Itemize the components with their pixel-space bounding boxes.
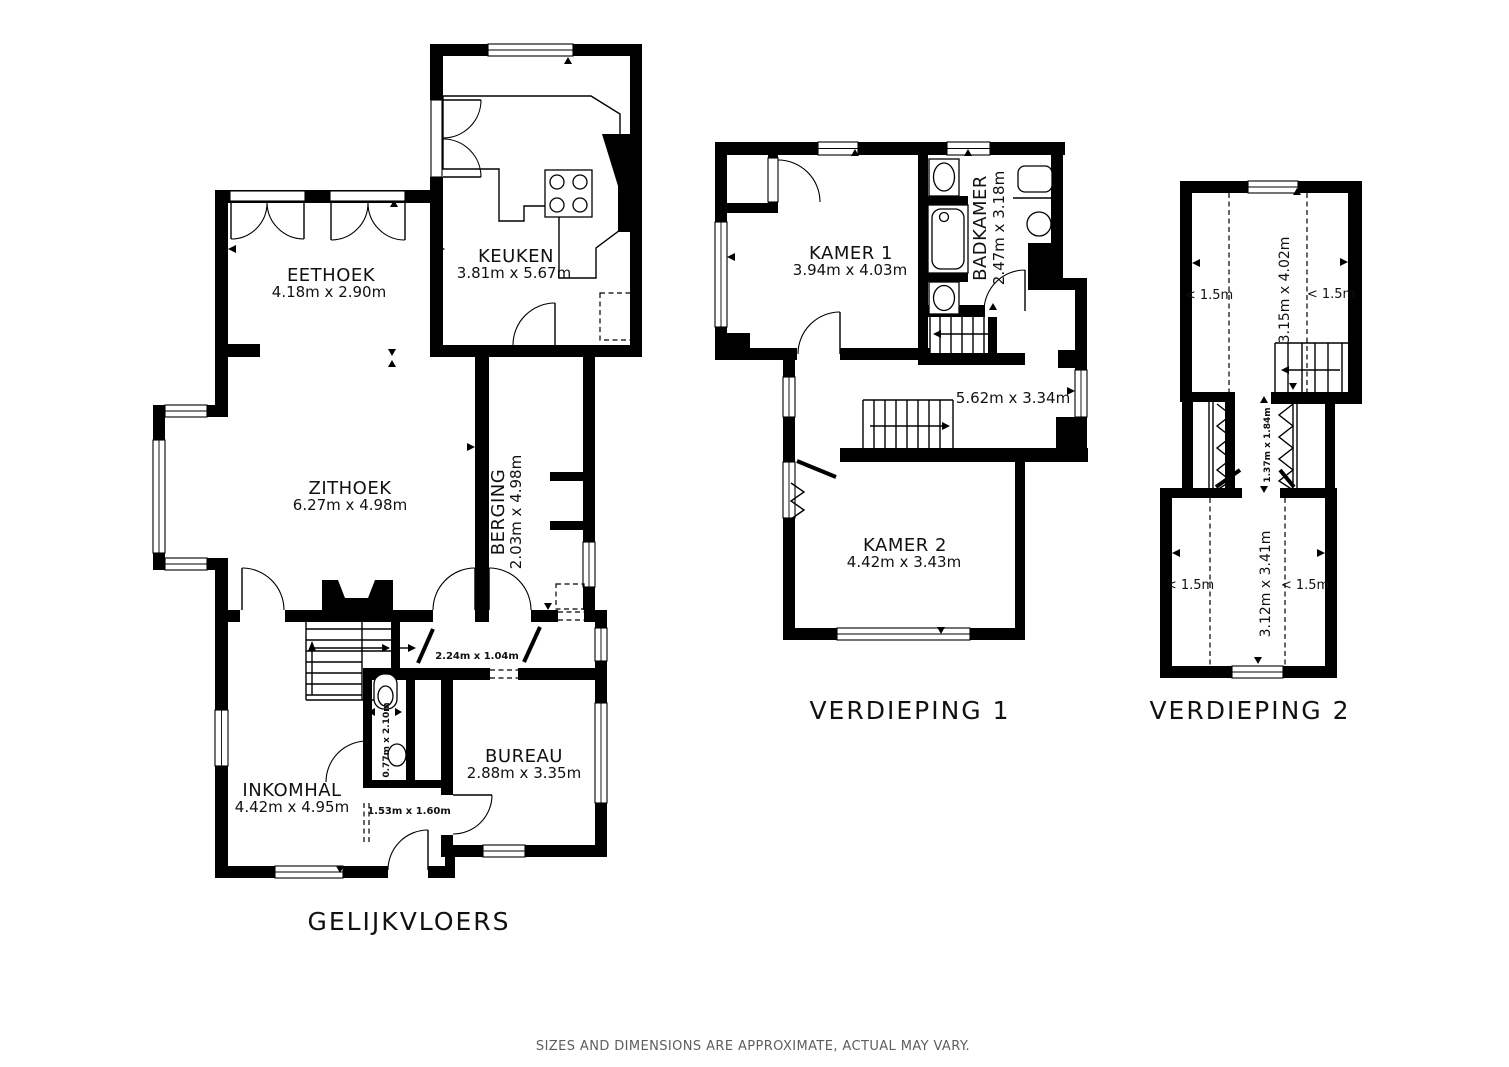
window [583, 542, 595, 587]
knee-label-bl: < 1.5m [1166, 578, 1214, 593]
second-stairs [1275, 343, 1348, 392]
second-closets [1209, 402, 1297, 490]
room-dims-berging: 2.03m x 4.98m [507, 455, 525, 569]
window [783, 462, 795, 518]
room-dims-kamer2: 4.42m x 3.43m [847, 553, 961, 571]
floorplan-page: EETHOEK 4.18m x 2.90m KEUKEN 3.81m x 5.6… [0, 0, 1509, 1067]
window [1248, 181, 1298, 193]
window [837, 628, 970, 640]
floor-label-first: VERDIEPING 1 [809, 696, 1010, 725]
door-panel [797, 461, 836, 477]
appliance-dashed [556, 584, 584, 609]
knee-label-br: < 1.5m [1281, 578, 1329, 593]
window [783, 377, 795, 417]
room-dims-bureau: 2.88m x 3.35m [467, 764, 581, 782]
floorplan-first: KAMER 1 3.94m x 4.03m BADKAMER 2.47m x 3… [715, 142, 1088, 725]
floorplan-ground: EETHOEK 4.18m x 2.90m KEUKEN 3.81m x 5.6… [153, 44, 642, 936]
window [715, 222, 727, 327]
room-dims-hal: 1.53m x 1.60m [367, 806, 451, 817]
window [483, 845, 525, 857]
room-label-berging: BERGING [488, 469, 509, 555]
window [595, 628, 607, 661]
room-dims-inkomhal: 4.42m x 4.95m [235, 798, 349, 816]
door-panel [524, 627, 540, 662]
window [165, 558, 207, 570]
window [275, 866, 343, 878]
room-dims-gang2: 1.37m x 1.84m [1263, 407, 1273, 482]
knee-label-tl: < 1.5m [1185, 288, 1233, 303]
window [1232, 666, 1283, 678]
window [165, 405, 207, 417]
door-panel [418, 629, 433, 663]
floorplan-second: 3.15m x 4.02m < 1.5m < 1.5m 1.37m x 1.84… [1149, 181, 1362, 725]
bathtub-icon [928, 205, 968, 273]
room-dims-eethoek: 4.18m x 2.90m [272, 283, 386, 301]
room-dims-onder: 3.12m x 3.41m [1258, 531, 1274, 638]
room-label-badkamer: BADKAMER [970, 175, 991, 281]
window [488, 44, 573, 56]
window [1075, 370, 1087, 417]
window [153, 440, 165, 553]
room-dims-toilet: 0.77m x 2.10m [382, 702, 392, 777]
room-dims-badkamer: 2.47m x 3.18m [990, 171, 1008, 285]
floor-label-ground: GELIJKVLOERS [307, 907, 510, 936]
room-dims-zithoek: 6.27m x 4.98m [293, 496, 407, 514]
appliance-dashed [600, 293, 632, 340]
room-dims-boven: 3.15m x 4.02m [1277, 237, 1293, 344]
knee-label-tr: < 1.5m [1307, 287, 1355, 302]
floorplan-svg: EETHOEK 4.18m x 2.90m KEUKEN 3.81m x 5.6… [0, 0, 1509, 1067]
toilet-icon [1013, 166, 1055, 236]
sink-icon [929, 282, 959, 314]
disclaimer-text: SIZES AND DIMENSIONS ARE APPROXIMATE, AC… [536, 1039, 970, 1054]
room-dims-gang: 2.24m x 1.04m [435, 651, 519, 662]
window [595, 703, 607, 803]
stove-icon [545, 170, 592, 217]
sink-icon [929, 159, 959, 196]
room-dims-keuken: 3.81m x 5.67m [457, 264, 571, 282]
room-dims-kamer1: 3.94m x 4.03m [793, 261, 907, 279]
window [215, 710, 228, 766]
floor-label-second: VERDIEPING 2 [1149, 696, 1350, 725]
window [818, 142, 858, 155]
room-dims-overloop: 5.62m x 3.34m [956, 389, 1070, 407]
